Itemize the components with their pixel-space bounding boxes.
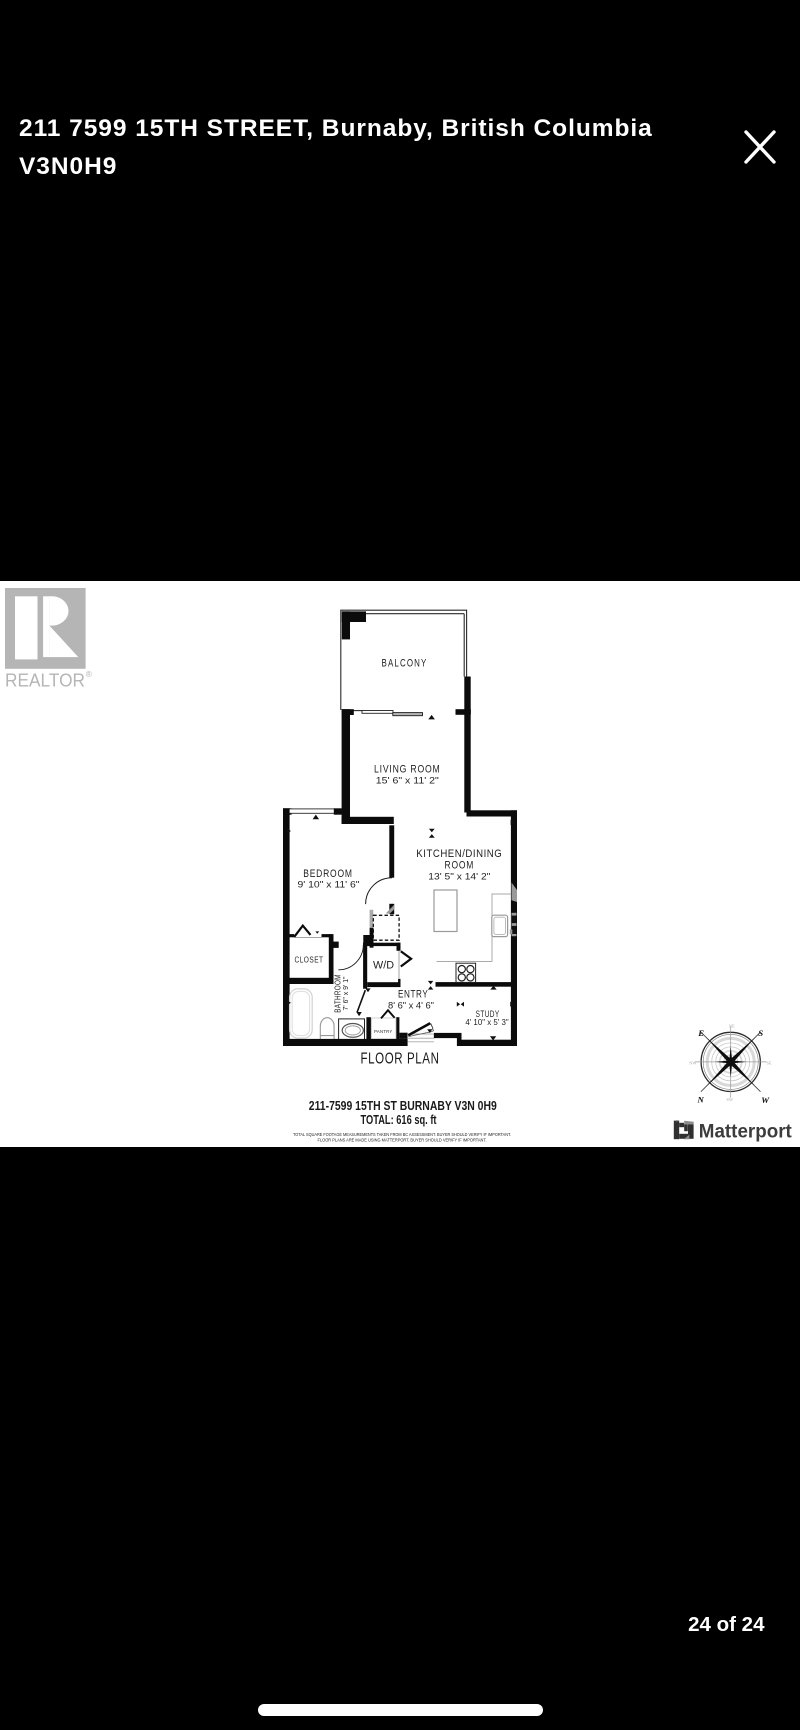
svg-text:N: N [697, 1094, 705, 1104]
svg-text:TOTAL: 616 sq. ft: TOTAL: 616 sq. ft [361, 1113, 438, 1127]
svg-text:BATHROOM: BATHROOM [333, 974, 343, 1013]
svg-text:BEDROOM: BEDROOM [303, 868, 353, 880]
svg-text:Matterport: Matterport [699, 1122, 793, 1143]
svg-text:TOTAL SQUARE FOOTAGE MEASUREME: TOTAL SQUARE FOOTAGE MEASUREMENTS TAKEN … [293, 1132, 511, 1137]
svg-text:SE: SE [766, 1061, 771, 1066]
svg-text:W: W [761, 1095, 770, 1105]
svg-text:8' 6" x 4' 6": 8' 6" x 4' 6" [388, 1001, 434, 1011]
svg-text:SW: SW [726, 1097, 733, 1102]
svg-text:ROOM: ROOM [445, 860, 475, 872]
svg-text:15' 6" x 11' 2": 15' 6" x 11' 2" [376, 776, 439, 787]
svg-text:4' 10" x 5' 3": 4' 10" x 5' 3" [465, 1018, 508, 1027]
svg-text:FLOOR PLAN: FLOOR PLAN [361, 1051, 440, 1068]
svg-text:S: S [758, 1028, 763, 1038]
svg-text:W/D: W/D [373, 960, 394, 972]
svg-text:7' 6" x 9' 1": 7' 6" x 9' 1" [343, 976, 350, 1011]
svg-text:211-7599 15TH ST BURNABY V3N 0: 211-7599 15TH ST BURNABY V3N 0H9 [309, 1098, 497, 1113]
svg-text:KITCHEN/DINING: KITCHEN/DINING [416, 848, 502, 860]
svg-text:NW: NW [689, 1060, 697, 1065]
svg-text:CLOSET: CLOSET [295, 955, 324, 965]
svg-text:REALTOR: REALTOR [5, 671, 85, 691]
svg-text:FLOOR PLANS ARE MADE USING MAT: FLOOR PLANS ARE MADE USING MATTERPORT. B… [318, 1137, 487, 1142]
svg-text:E: E [697, 1028, 704, 1038]
svg-text:NE: NE [729, 1024, 735, 1029]
svg-text:ENTRY: ENTRY [398, 989, 429, 1001]
svg-text:®: ® [86, 669, 93, 679]
svg-text:13' 5" x 14' 2": 13' 5" x 14' 2" [428, 872, 490, 883]
svg-text:BALCONY: BALCONY [382, 658, 428, 670]
svg-text:PANTRY: PANTRY [374, 1029, 393, 1035]
svg-text:9' 10" x 11' 6": 9' 10" x 11' 6" [298, 880, 360, 891]
svg-text:LIVING ROOM: LIVING ROOM [374, 764, 441, 776]
